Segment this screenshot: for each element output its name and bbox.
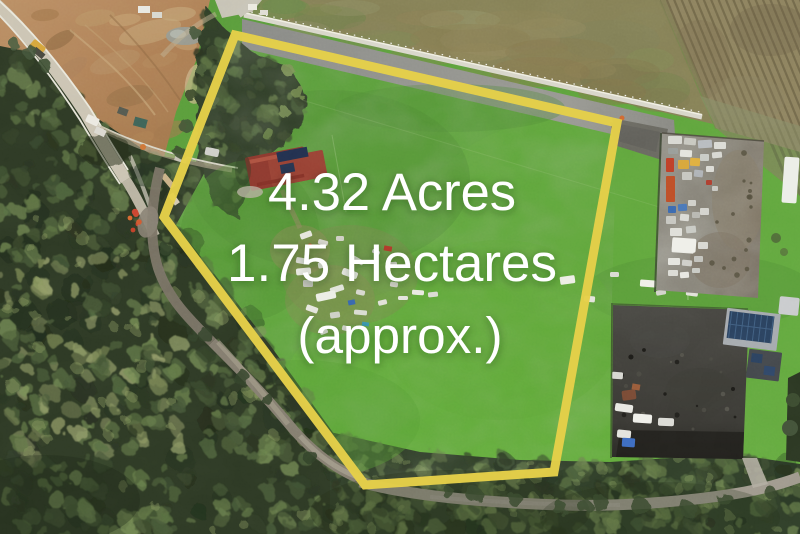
svg-text:4.32 Acres: 4.32 Acres — [268, 163, 516, 222]
svg-text:(approx.): (approx.) — [297, 307, 502, 364]
svg-text:1.75 Hectares: 1.75 Hectares — [227, 234, 557, 293]
